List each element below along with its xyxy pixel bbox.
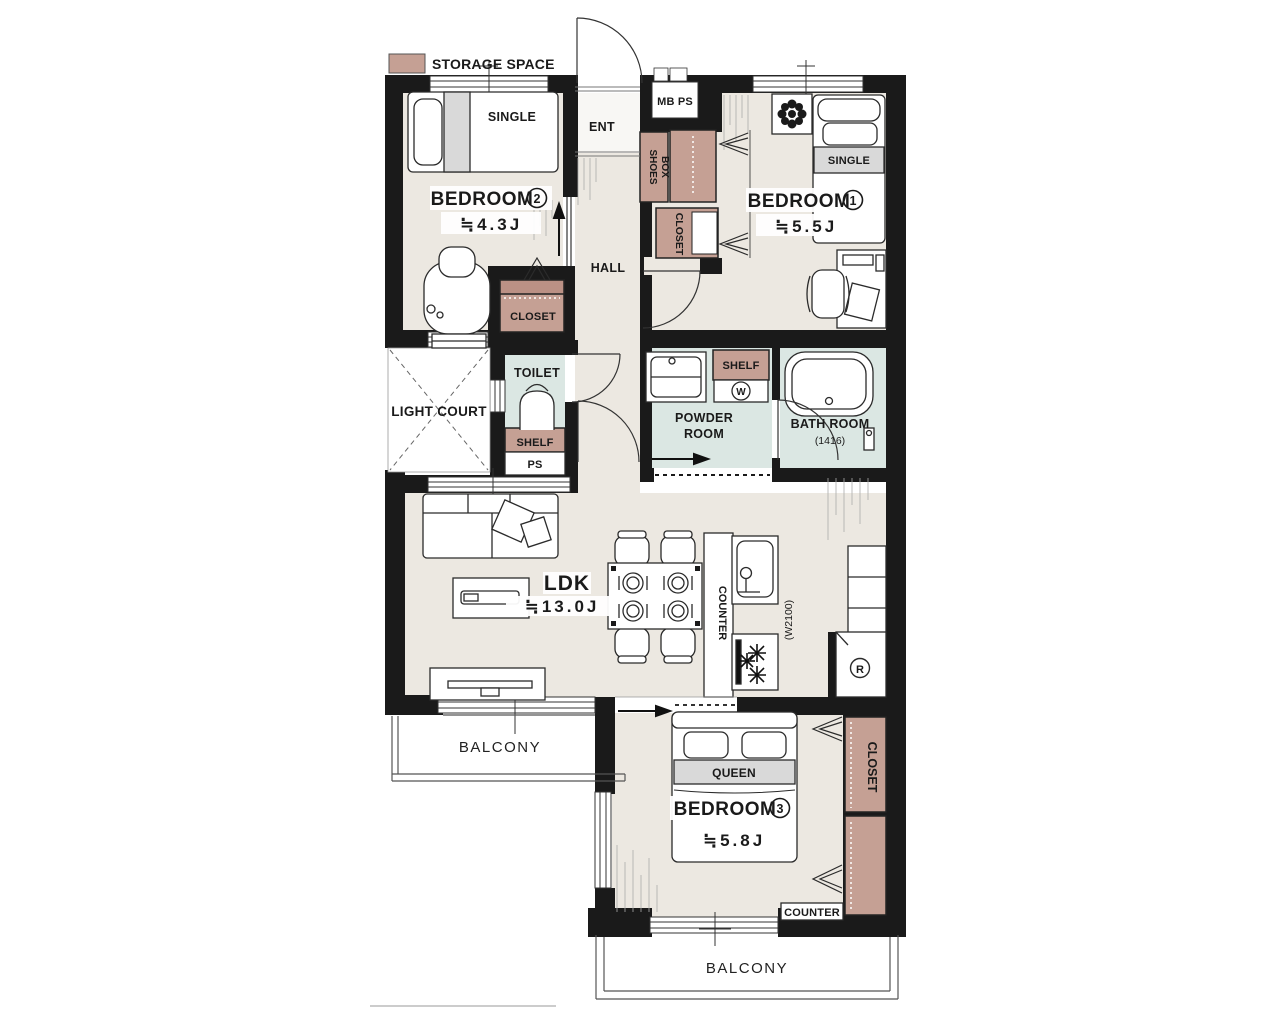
window-bedroom1-top xyxy=(753,60,863,95)
kitchen-width-note: (W2100) xyxy=(783,600,795,640)
powder-room-label-2: ROOM xyxy=(684,427,724,441)
kitchen-counter-label: COUNTER xyxy=(716,586,728,640)
bedroom3-name: BEDROOM xyxy=(674,799,777,820)
window-toilet-lightcourt xyxy=(490,380,505,412)
window-bedroom3-left xyxy=(595,792,611,888)
bedroom1-closet-label: CLOSET xyxy=(673,213,685,256)
bedroom2-number: 2 xyxy=(534,192,541,206)
bedroom3-closet-label: CLOSET xyxy=(865,742,879,793)
tv-board xyxy=(430,668,545,700)
bedroom2-bed-label: SINGLE xyxy=(488,110,536,124)
bedroom3-size: ≒5.8J xyxy=(703,831,765,850)
bedroom3-sliding-door xyxy=(615,697,737,705)
floor-plan-page: STORAGE SPACE ENT MB PS SHOES BOX HALL B… xyxy=(0,0,1280,1033)
fridge-letter: R xyxy=(856,664,864,676)
bed-single-bedroom2 xyxy=(408,92,558,172)
toilet-label: TOILET xyxy=(514,366,560,380)
stove xyxy=(732,634,778,690)
bedroom2-sliding-door xyxy=(567,197,571,266)
bedroom2-size: ≒4.3J xyxy=(460,215,522,234)
legend-storage-label: STORAGE SPACE xyxy=(432,56,555,72)
bedroom2-closet-label: CLOSET xyxy=(510,311,556,323)
vanity-sink xyxy=(646,352,706,402)
bedroom3-number: 3 xyxy=(777,802,784,816)
powder-room-label-1: POWDER xyxy=(675,411,733,425)
bedroom3-counter-label: COUNTER xyxy=(784,907,840,919)
powder-shelf-label: SHELF xyxy=(722,360,759,372)
bedroom1-door-opening xyxy=(644,257,700,275)
legend: STORAGE SPACE xyxy=(389,54,555,73)
hall-label: HALL xyxy=(591,261,626,275)
bedroom1-closet-upper xyxy=(670,130,716,202)
bedroom1-number: 1 xyxy=(850,194,857,208)
bedroom3-closet-lower xyxy=(845,816,886,915)
bedroom1-closet-lower xyxy=(656,208,718,258)
bedroom1-size: ≒5.5J xyxy=(775,217,837,236)
meter-box-label: MB PS xyxy=(657,96,693,108)
ldk-size: ≒13.0J xyxy=(525,597,600,616)
washer-letter: W xyxy=(736,387,746,398)
bedroom2-closet xyxy=(500,280,564,332)
bath-size-label: (1416) xyxy=(815,435,845,447)
ps-label: PS xyxy=(527,459,542,471)
balcony-bottom-label: BALCONY xyxy=(706,960,788,977)
balcony-left-label: BALCONY xyxy=(459,739,541,756)
shoes-box-label-2: BOX xyxy=(659,156,670,178)
bath-room-label: BATH ROOM xyxy=(791,417,870,431)
kitchen-sink xyxy=(732,536,778,604)
sofa xyxy=(423,494,558,558)
window-bedroom3-balcony xyxy=(650,912,778,946)
ldk-name: LDK xyxy=(544,572,590,595)
kitchen-shelf xyxy=(848,546,886,640)
desk-chair xyxy=(807,270,849,318)
legend-storage-swatch xyxy=(389,54,425,73)
bedroom3-bed-label: QUEEN xyxy=(712,766,756,780)
bedroom2-name: BEDROOM xyxy=(431,189,534,210)
floor-plan: STORAGE SPACE ENT MB PS SHOES BOX HALL B… xyxy=(0,0,1280,1033)
front-door xyxy=(577,18,642,83)
shoes-box-label-1: SHOES xyxy=(647,149,658,184)
entrance-label: ENT xyxy=(589,120,615,134)
dining-table xyxy=(608,563,702,629)
bedroom1-name: BEDROOM xyxy=(748,191,851,212)
bedroom1-bed-label: SINGLE xyxy=(828,155,870,167)
light-court-label: LIGHT COURT xyxy=(391,404,487,419)
toilet-shelf-label: SHELF xyxy=(516,437,553,449)
plant-icon xyxy=(772,94,812,134)
